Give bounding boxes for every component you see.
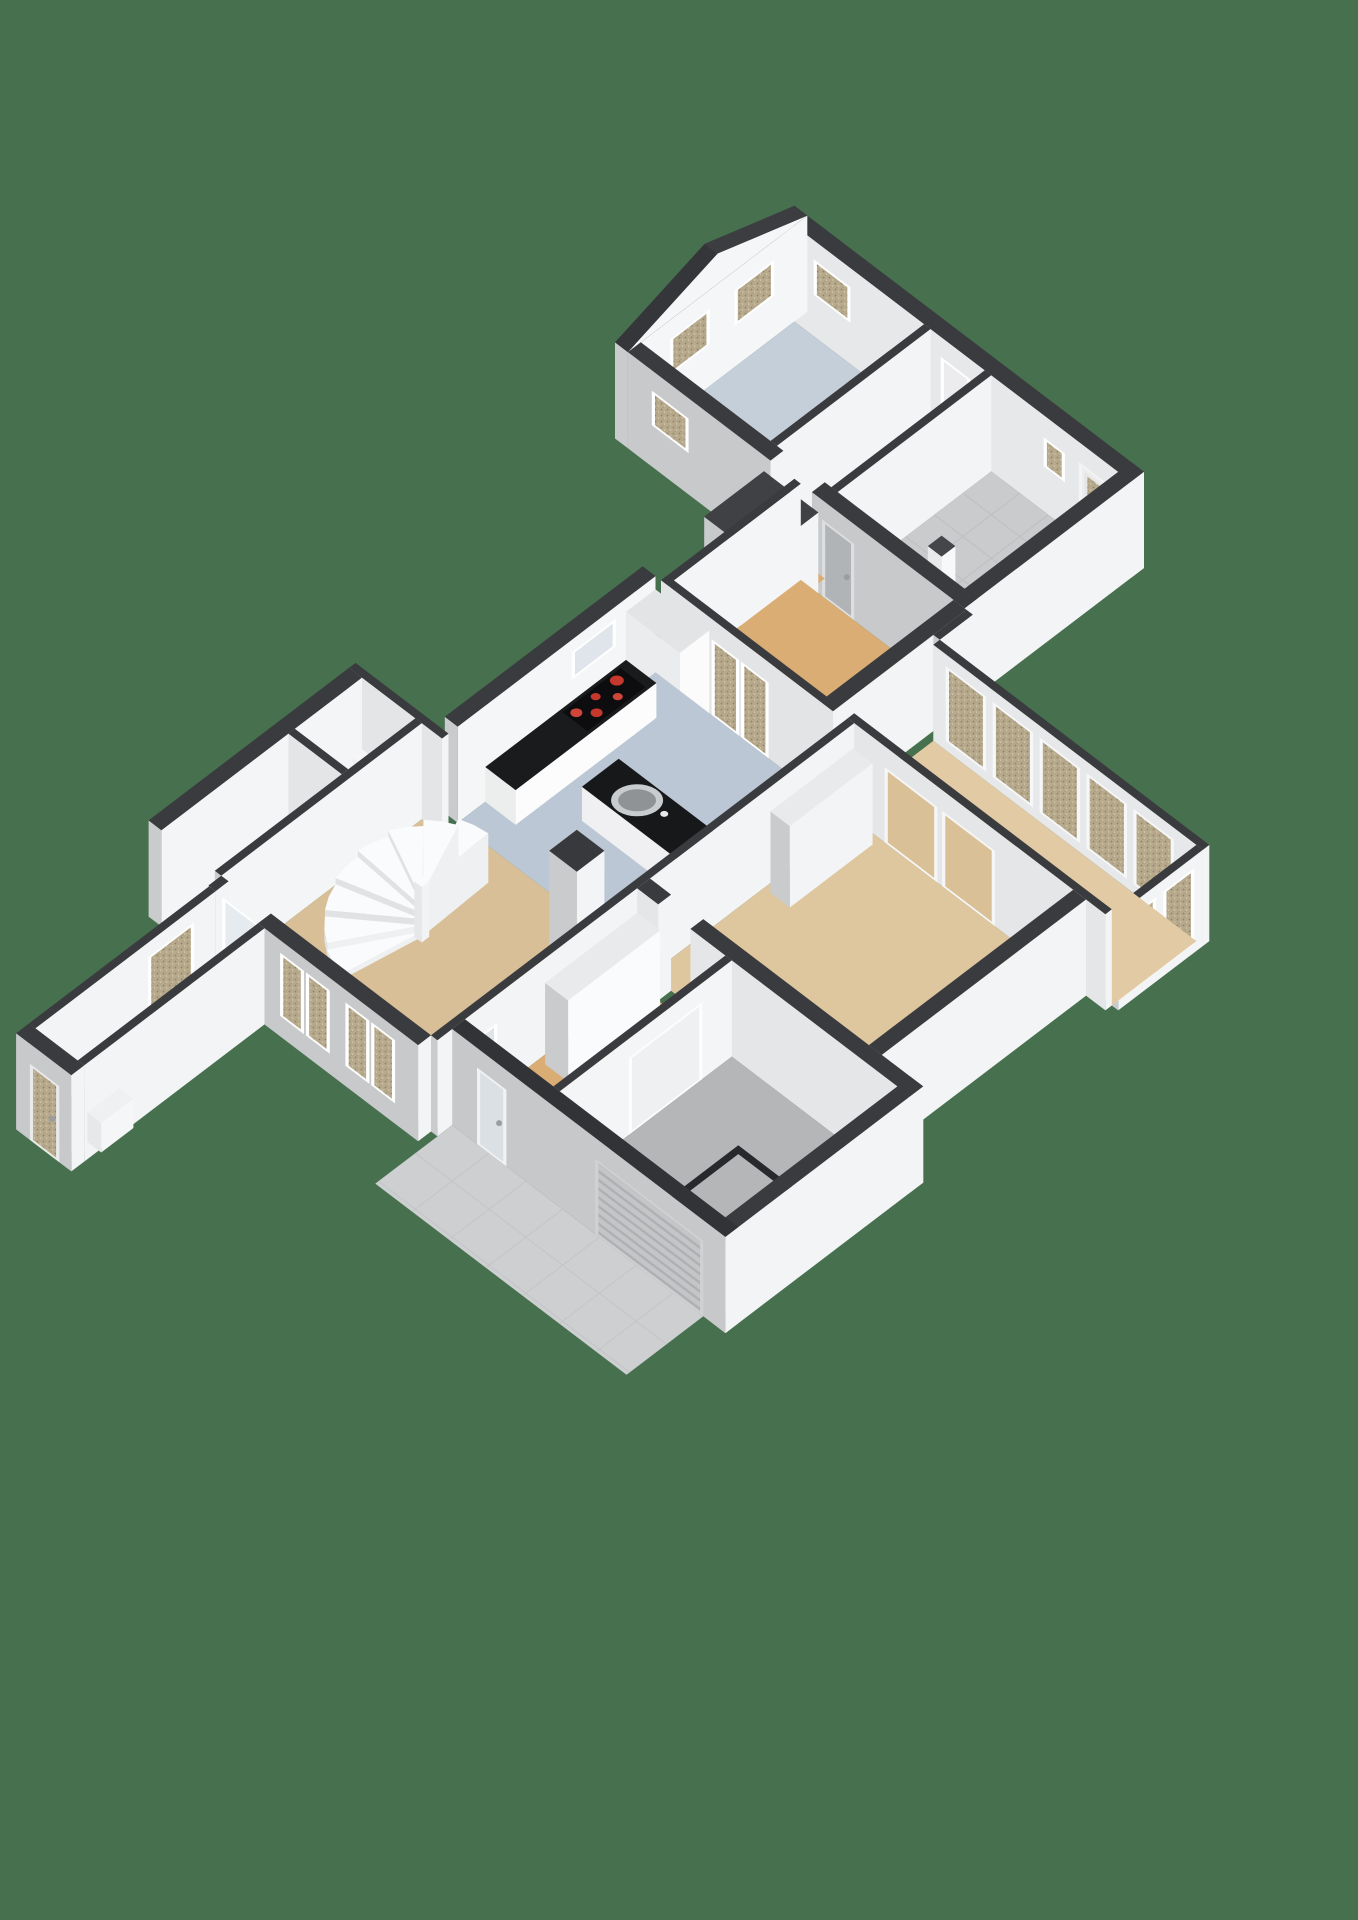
front-door-knob-icon	[49, 1116, 55, 1122]
burner-4	[591, 708, 603, 717]
shapes-root	[16, 206, 1209, 1375]
leftzone-wall-n-side	[442, 734, 449, 835]
living-wall-s2-side	[418, 1035, 431, 1141]
burner-3	[591, 693, 601, 700]
burner-1	[610, 676, 624, 686]
living-wall-e-side	[431, 1035, 437, 1136]
leftzone-wall-w-side	[149, 820, 162, 926]
porch-wall-f-side	[71, 1065, 84, 1171]
bedroom-wardrobe-side	[771, 811, 790, 907]
newel-post-side	[414, 881, 421, 942]
bedroom-wall-s1-side	[658, 895, 671, 1001]
garage-wall-f-side	[725, 1227, 738, 1333]
floorplan-3d-render	[0, 0, 1358, 1920]
hall-gray-door-knob-icon	[844, 574, 850, 580]
sink-faucet	[660, 811, 668, 817]
newel-post-side	[422, 881, 429, 942]
burner-2	[613, 693, 623, 700]
burner-5	[570, 708, 582, 717]
bedroom-wall-n-side	[1105, 909, 1111, 1010]
wing-gable-wall-side	[615, 342, 628, 448]
sink-inner	[618, 789, 656, 811]
sunroom-wall-n-side	[1203, 845, 1209, 946]
side-entry-door-knob-icon	[496, 1120, 502, 1126]
floorplan-viewport	[0, 0, 1358, 1920]
